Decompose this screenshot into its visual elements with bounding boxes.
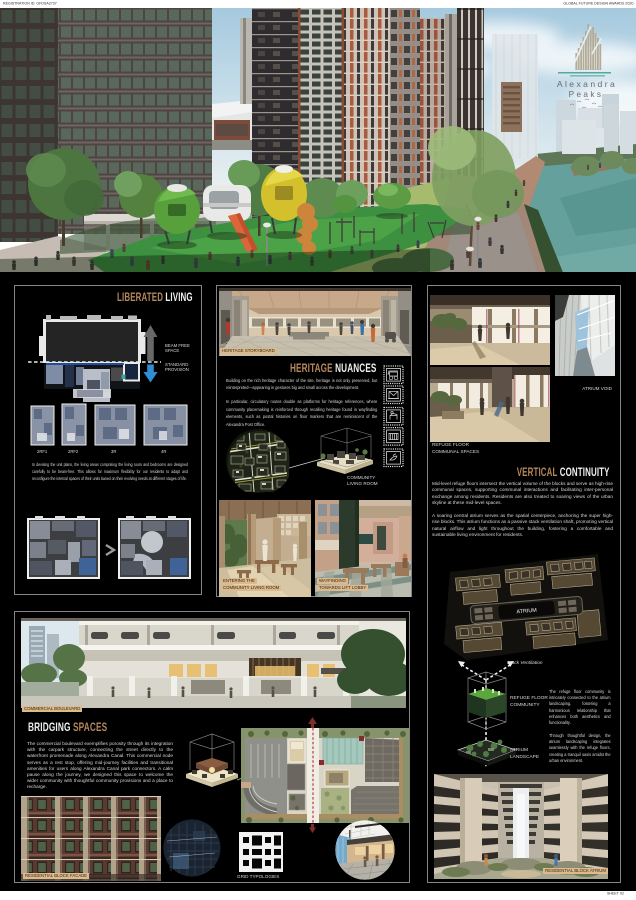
svg-text:Alexandra: Alexandra [557, 79, 617, 89]
svg-text:Peaks: Peaks [569, 90, 604, 99]
